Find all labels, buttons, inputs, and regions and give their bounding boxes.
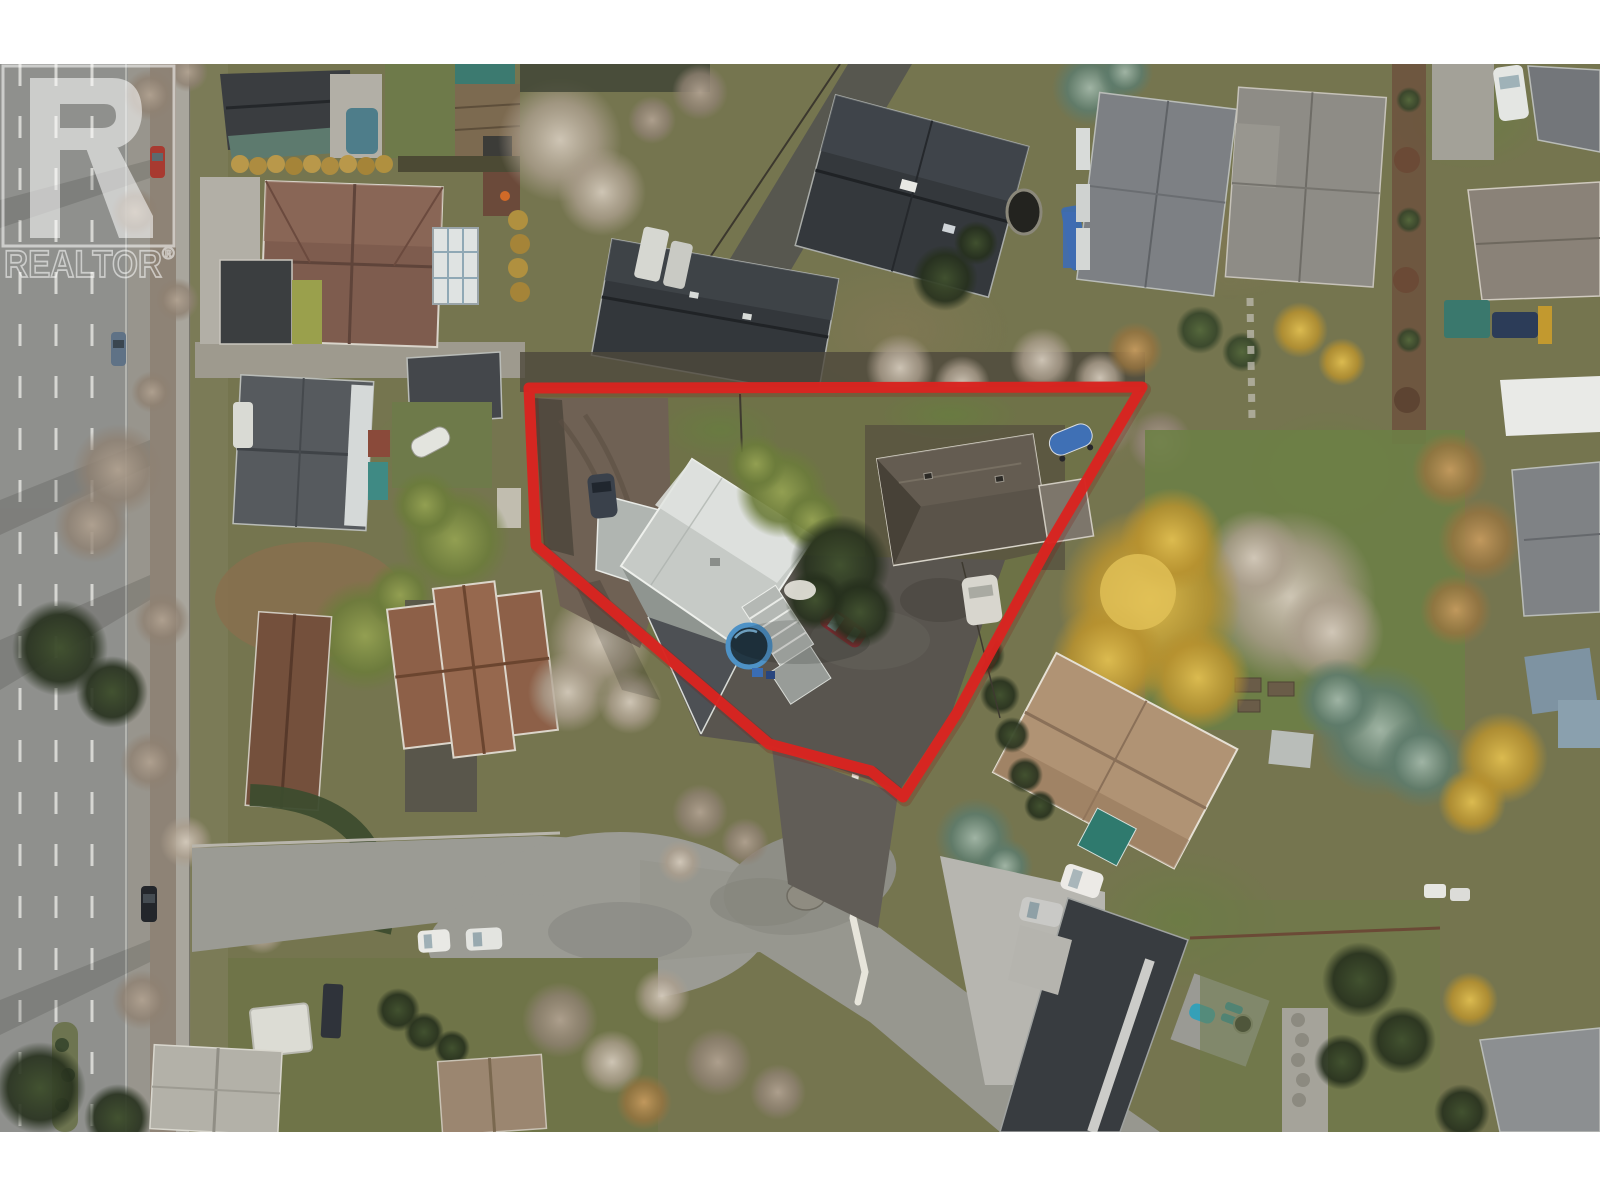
grey-roof-ne [1528, 66, 1600, 152]
tan-house-s [438, 1054, 547, 1135]
teal-playhouse [368, 430, 390, 500]
white-roof-e [1500, 376, 1600, 436]
grey-roof-corner [1480, 1028, 1600, 1132]
grey-house-ne2 [1225, 87, 1386, 287]
driveway-ne [1432, 64, 1494, 160]
grey-house-b [233, 375, 374, 531]
highway-dark-car [141, 886, 157, 922]
dark-car [587, 473, 618, 520]
highway-blue-car [111, 332, 126, 366]
watermark-text: REALTOR [4, 244, 162, 286]
hedgerow [1392, 64, 1426, 444]
white-tarp [784, 580, 816, 600]
letterbox-bottom [0, 1132, 1600, 1200]
aerial-photo-page: REALTOR ® [0, 0, 1600, 1200]
highway-red-car [150, 146, 165, 178]
watermark-registered-symbol: ® [162, 244, 175, 263]
roof-vent [710, 558, 720, 566]
brown-house-c2 [245, 612, 331, 811]
white-car [961, 574, 1003, 627]
teal-shed-ne [1444, 300, 1490, 338]
aerial-photo: REALTOR ® [0, 0, 1600, 1200]
blue-bin-2 [766, 671, 775, 679]
white-van [233, 402, 253, 448]
dark-truck [321, 984, 344, 1039]
navy-truck [1492, 312, 1538, 338]
letterbox-top [0, 0, 1600, 64]
sunroom [433, 228, 478, 304]
pale-house-s [150, 1045, 282, 1136]
blue-bin [752, 668, 763, 677]
covered-boat [346, 108, 378, 154]
yellow-digger [1538, 306, 1552, 344]
orange-object [500, 191, 510, 201]
pond [1007, 190, 1041, 234]
white-canopy [250, 1003, 313, 1057]
grey-house-ne1 [1077, 93, 1237, 296]
light-shed [1268, 730, 1313, 768]
blue-tarp-2 [1063, 212, 1076, 268]
